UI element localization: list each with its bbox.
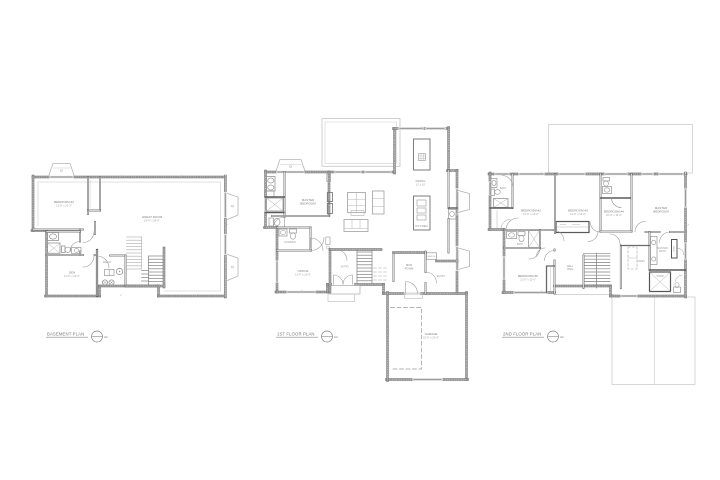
svg-text:BATH: BATH bbox=[659, 250, 666, 253]
svg-text:OPEN: OPEN bbox=[567, 269, 574, 271]
svg-text:BATH: BATH bbox=[517, 243, 523, 246]
svg-text:12' x 10': 12' x 10' bbox=[416, 184, 426, 187]
svg-text:ENTRY: ENTRY bbox=[341, 266, 349, 269]
svg-text:MECH: MECH bbox=[103, 260, 111, 264]
svg-text:BEDROOM: BEDROOM bbox=[300, 202, 316, 206]
svg-text:BEDROOM #4: BEDROOM #4 bbox=[604, 210, 624, 214]
svg-text:A2: A2 bbox=[560, 335, 564, 339]
svg-text:GARAGE: GARAGE bbox=[425, 332, 438, 336]
svg-text:11'-0" x 12'-0": 11'-0" x 12'-0" bbox=[570, 212, 586, 216]
svg-text:1ST FLOOR PLAN: 1ST FLOOR PLAN bbox=[277, 332, 315, 337]
svg-text:ENTRY: ENTRY bbox=[437, 275, 446, 278]
svg-text:DINING: DINING bbox=[416, 179, 426, 183]
svg-text:BEDROOM #3: BEDROOM #3 bbox=[568, 209, 588, 213]
svg-text:LNDRY: LNDRY bbox=[637, 260, 645, 263]
svg-text:SHWR: SHWR bbox=[656, 275, 664, 278]
svg-text:BEDROOM #5: BEDROOM #5 bbox=[518, 274, 538, 278]
svg-text:KITCHEN: KITCHEN bbox=[415, 224, 427, 228]
svg-text:11'-0" x 12'-0": 11'-0" x 12'-0" bbox=[523, 212, 539, 216]
svg-text:POWDER: POWDER bbox=[284, 241, 295, 244]
svg-text:A2: A2 bbox=[104, 335, 108, 339]
svg-text:BASEMENT PLAN: BASEMENT PLAN bbox=[47, 332, 84, 337]
svg-text:2ND FLOOR PLAN: 2ND FLOOR PLAN bbox=[503, 332, 541, 337]
svg-text:BEDROOM #2: BEDROOM #2 bbox=[521, 209, 541, 213]
svg-text:BATH: BATH bbox=[500, 187, 506, 190]
svg-text:OFFICE: OFFICE bbox=[298, 269, 309, 273]
svg-text:11'-6" x 12'-0": 11'-6" x 12'-0" bbox=[64, 274, 80, 278]
svg-text:A2: A2 bbox=[334, 335, 338, 339]
svg-text:ROOM: ROOM bbox=[405, 267, 414, 271]
svg-text:19'-4" x 24'-0": 19'-4" x 24'-0" bbox=[144, 219, 160, 223]
svg-text:BENCH: BENCH bbox=[428, 256, 436, 258]
svg-text:22'-0" x 22'-0": 22'-0" x 22'-0" bbox=[423, 336, 439, 340]
svg-text:11'-0" x 12'-2": 11'-0" x 12'-2" bbox=[56, 204, 72, 208]
svg-text:LINEN: LINEN bbox=[674, 245, 676, 252]
svg-text:10'-0" x 11'-0": 10'-0" x 11'-0" bbox=[606, 213, 622, 217]
svg-text:GREAT ROOM: GREAT ROOM bbox=[142, 215, 163, 219]
svg-text:BEDROOM: BEDROOM bbox=[653, 210, 669, 214]
svg-text:DEN: DEN bbox=[69, 271, 75, 275]
svg-text:HALL: HALL bbox=[567, 264, 574, 268]
svg-text:11'-0" x 12'-0": 11'-0" x 12'-0" bbox=[295, 273, 311, 277]
svg-text:BEDROOM #4: BEDROOM #4 bbox=[54, 200, 74, 204]
svg-text:11'-0" x 11'-6": 11'-0" x 11'-6" bbox=[520, 278, 536, 282]
